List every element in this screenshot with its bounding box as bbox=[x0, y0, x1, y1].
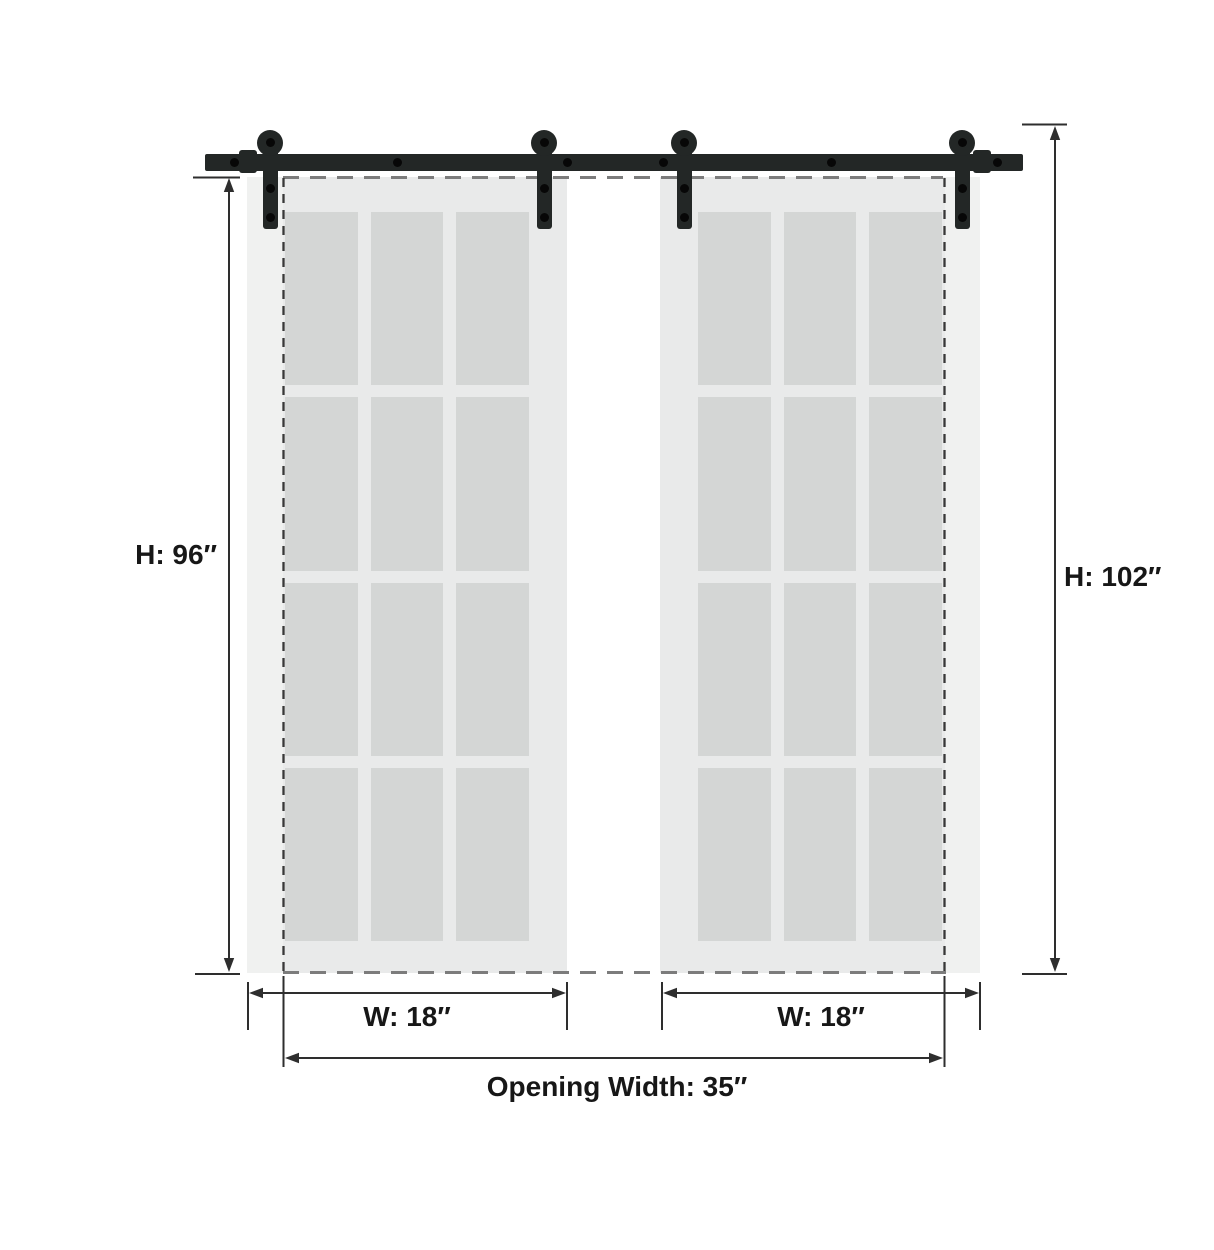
rail-end-stop-left bbox=[239, 150, 257, 173]
rail-screw bbox=[659, 158, 668, 167]
strap-bolt bbox=[540, 213, 549, 222]
height-dimension-total bbox=[1022, 125, 1067, 975]
barn-door-dimension-diagram: H: 96″ H: 102″ W: 18″ W: 18″ Opening Wid… bbox=[0, 0, 1214, 1250]
strap-bolt bbox=[680, 213, 689, 222]
wheel-hub bbox=[680, 138, 689, 147]
height-dimension-door bbox=[193, 178, 240, 975]
dimension-overlay bbox=[0, 0, 1214, 1250]
opening-dashed-outline bbox=[283, 178, 946, 1068]
door-width-label-right: W: 18″ bbox=[721, 1002, 921, 1031]
rail-screw bbox=[993, 158, 1002, 167]
strap-bolt bbox=[266, 184, 275, 193]
wheel-hub bbox=[540, 138, 549, 147]
rail-track bbox=[205, 154, 1023, 171]
door-width-label-left: W: 18″ bbox=[307, 1002, 507, 1031]
strap-bolt bbox=[958, 213, 967, 222]
door-height-label: H: 96″ bbox=[135, 540, 217, 569]
opening-width-label: Opening Width: 35″ bbox=[417, 1072, 817, 1101]
rail-screw bbox=[563, 158, 572, 167]
rail-screw bbox=[230, 158, 239, 167]
rail-screw bbox=[393, 158, 402, 167]
strap-bolt bbox=[540, 184, 549, 193]
rail-screw bbox=[827, 158, 836, 167]
opening-width-dimension bbox=[285, 1053, 943, 1063]
wheel-hub bbox=[266, 138, 275, 147]
wheel-hub bbox=[958, 138, 967, 147]
strap-bolt bbox=[958, 184, 967, 193]
strap-bolt bbox=[680, 184, 689, 193]
strap-bolt bbox=[266, 213, 275, 222]
rail-end-stop-right bbox=[973, 150, 991, 173]
total-height-label: H: 102″ bbox=[1064, 562, 1161, 591]
